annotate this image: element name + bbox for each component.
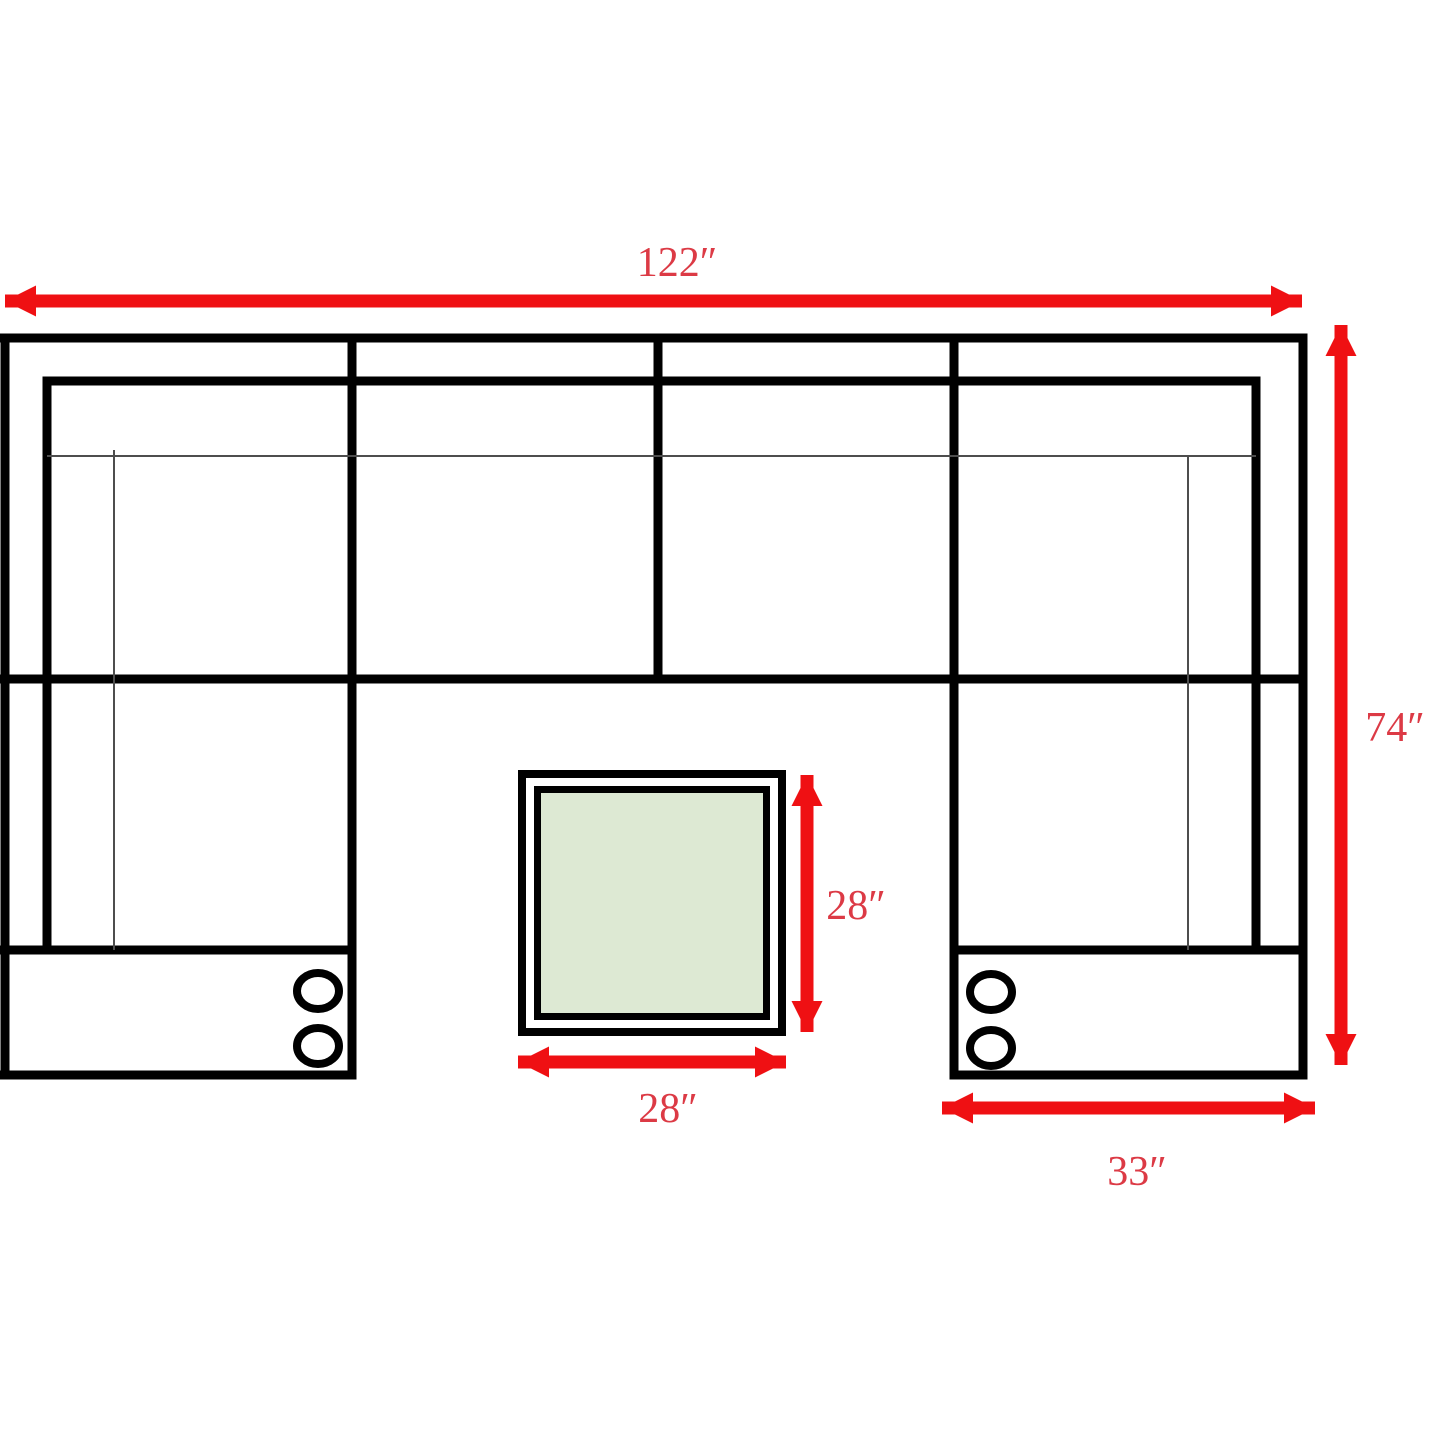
total-depth-label: 74″ xyxy=(1365,705,1425,751)
ottoman-table xyxy=(522,774,782,1032)
total-width-label: 122″ xyxy=(637,240,718,286)
ottoman-inner-top xyxy=(538,790,767,1017)
ottoman-width-label: 28″ xyxy=(638,1086,698,1132)
ottoman-depth-label: 28″ xyxy=(826,883,886,929)
right-console-cup-holder-2 xyxy=(970,1030,1012,1066)
furniture-dimension-diagram: 122″ 74″ 28″ 28″ 33″ xyxy=(0,0,1445,1445)
sectional-sofa-diagram: 122″ 74″ 28″ 28″ 33″ xyxy=(0,0,1445,1445)
right-console-cup-holder-1 xyxy=(970,974,1012,1010)
left-console-cup-holder-2 xyxy=(297,1028,339,1064)
chaise-width-label: 33″ xyxy=(1107,1149,1167,1195)
left-console-cup-holder-1 xyxy=(297,973,339,1009)
